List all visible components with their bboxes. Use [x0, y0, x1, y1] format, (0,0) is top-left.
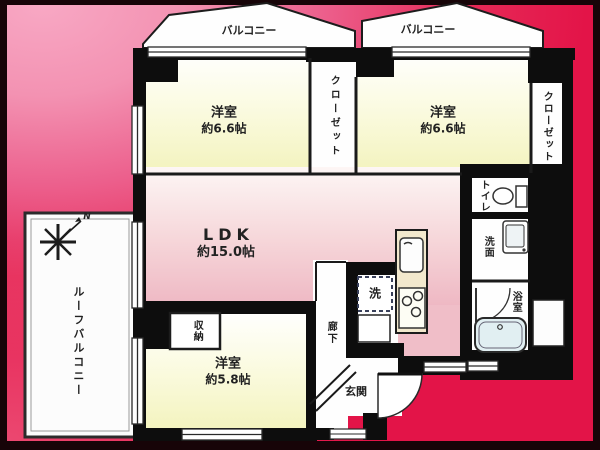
- washroom-label: 洗面: [481, 236, 494, 258]
- laundry-label: 洗: [369, 287, 381, 302]
- bedroom-bottom-label: 洋室 約5.8帖: [205, 356, 250, 387]
- entrance-door-swing: [378, 374, 422, 418]
- bedroom-top-left-label: 洋室 約6.6帖: [201, 105, 246, 136]
- balcony-left-label: バルコニー: [222, 24, 277, 38]
- floorplan-image: バルコニー バルコニー 洋室 約6.6帖 洋室 約6.6帖 LDK 約15.0帖…: [0, 0, 600, 450]
- window-top-right: [392, 47, 530, 57]
- closet-middle-label: クローゼット: [327, 75, 340, 159]
- stove: [399, 288, 425, 328]
- storage-label: 収納: [190, 320, 203, 342]
- room-size: 約5.8帖: [205, 373, 250, 388]
- ldk-label: LDK 約15.0帖: [197, 225, 255, 261]
- room-size: 約15.0帖: [197, 245, 255, 261]
- window-left-bedroom: [132, 106, 143, 174]
- hallway-label: 廊下: [324, 321, 337, 345]
- hallway-floor: [313, 260, 348, 430]
- entrance-porch: [330, 429, 366, 439]
- washbasin-icon: [503, 221, 528, 253]
- closet-right-label: クローゼット: [540, 91, 553, 163]
- roof-balcony-label: ルーフバルコニー: [71, 286, 85, 398]
- window-top-left: [148, 47, 306, 57]
- window-bottom-bedroom: [182, 429, 262, 440]
- meter-box: [533, 300, 564, 346]
- room-name: LDK: [197, 225, 255, 245]
- compass-north-label: N: [83, 212, 91, 222]
- bathroom-label: 浴室: [509, 291, 522, 313]
- bedroom-top-right-label: 洋室 約6.6帖: [420, 105, 465, 136]
- room-name: 洋室: [201, 105, 246, 121]
- room-size: 約6.6帖: [201, 122, 246, 137]
- room-size: 約6.6帖: [420, 122, 465, 137]
- toilet-label: トイレ: [477, 180, 490, 213]
- window-left-bedroom-bottom: [132, 338, 143, 424]
- window-bottom-bath: [468, 361, 498, 371]
- room-name: 洋室: [420, 105, 465, 121]
- window-left-ldk: [132, 222, 143, 308]
- window-bottom-kitchen: [424, 362, 466, 372]
- kitchen-counter: [396, 230, 427, 333]
- balcony-right-label: バルコニー: [401, 23, 456, 37]
- entrance-label: 玄関: [345, 385, 367, 399]
- floorplan-graphics: [0, 0, 600, 450]
- room-name: 洋室: [205, 356, 250, 372]
